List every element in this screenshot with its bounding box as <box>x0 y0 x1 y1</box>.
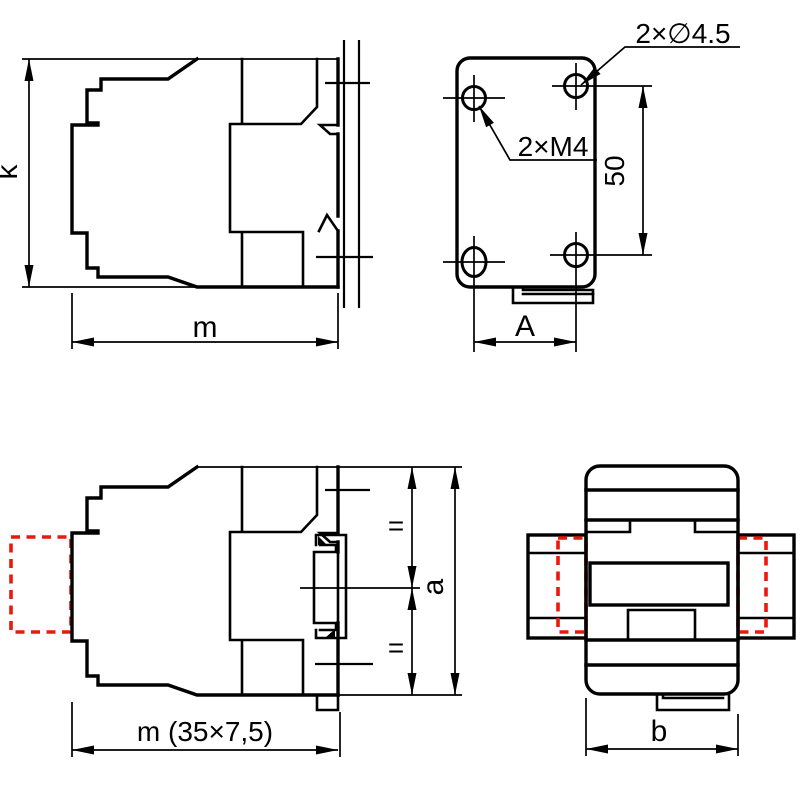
center-tab <box>628 610 695 640</box>
dim-label-50: 50 <box>599 155 630 186</box>
clip-release-foot <box>317 695 338 710</box>
body-outline <box>72 467 338 695</box>
top-view: b <box>528 466 794 756</box>
arrowhead <box>451 673 460 695</box>
din-rail-lines <box>344 40 359 308</box>
dim-label-k: k <box>0 164 24 180</box>
body-outline <box>72 59 338 287</box>
arrowhead <box>316 746 338 755</box>
mounting-plate-outline <box>457 58 595 287</box>
rail-notch <box>320 125 338 134</box>
equal-mark-bottom: = <box>388 632 404 663</box>
contactor-dimension-drawing: k m 50 A 2×∅4.5 2×M4 <box>0 0 800 800</box>
side-view-on-rail: k m <box>0 40 373 349</box>
arrowhead <box>554 338 576 347</box>
arrowhead <box>72 746 94 755</box>
accessory-dashed-outline <box>11 537 71 632</box>
top-step-notches <box>586 520 738 532</box>
dim-label-m: m <box>193 311 218 344</box>
leader-dia-holes <box>581 47 740 85</box>
hole-callout-dia: 2×∅4.5 <box>635 18 730 49</box>
arrowhead <box>716 745 738 754</box>
dim-label-b: b <box>651 715 668 748</box>
equal-mark-top: = <box>388 510 404 541</box>
center-window <box>590 563 728 605</box>
arrowhead <box>639 86 648 108</box>
din-rail-section <box>314 535 346 638</box>
body-interior-lines <box>230 59 317 287</box>
side-view-accessory: = = a m (35×7,5) <box>11 467 462 757</box>
dim-label-A: A <box>515 310 535 343</box>
arrowhead <box>408 588 417 610</box>
body-outline-top <box>586 466 738 694</box>
arrowhead <box>586 745 608 754</box>
arrowhead <box>451 467 460 489</box>
dim-label-m-rail: m (35×7,5) <box>137 716 273 747</box>
arrowhead <box>316 338 338 347</box>
bottom-tab <box>657 694 729 710</box>
body-cross-lines <box>586 490 738 665</box>
technical-drawing-canvas: k m 50 A 2×∅4.5 2×M4 <box>0 0 800 800</box>
mounting-plate-view: 50 A 2×∅4.5 2×M4 <box>443 18 740 352</box>
arrowhead <box>639 233 648 255</box>
arrowhead <box>408 467 417 489</box>
clip-spring-chevron <box>319 215 338 231</box>
hole-callout-thread: 2×M4 <box>518 131 589 162</box>
arrowhead <box>25 265 34 287</box>
arrowhead <box>474 338 496 347</box>
arrowhead <box>25 59 34 81</box>
arrowhead <box>408 566 417 588</box>
hole-centerlines <box>443 63 652 352</box>
arrowhead <box>408 673 417 695</box>
dim-label-a: a <box>417 578 450 595</box>
arrowhead <box>72 338 94 347</box>
body-interior-lines <box>230 467 317 695</box>
